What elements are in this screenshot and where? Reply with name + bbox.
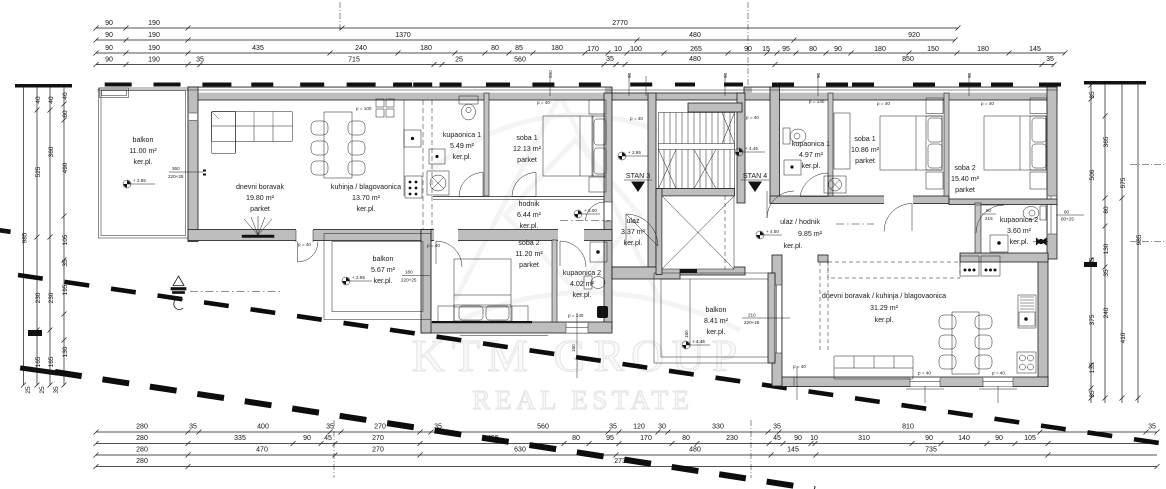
svg-text:375: 375 <box>1089 314 1096 325</box>
svg-text:9.85 m²: 9.85 m² <box>798 230 823 238</box>
svg-text:31.29 m²: 31.29 m² <box>870 304 899 312</box>
svg-text:ker.pl.: ker.pl. <box>624 239 643 247</box>
svg-text:35: 35 <box>62 259 69 267</box>
svg-text:190: 190 <box>148 57 160 64</box>
svg-text:575: 575 <box>1120 177 1127 188</box>
svg-text:525: 525 <box>35 166 42 177</box>
svg-text:p = 40: p = 40 <box>793 364 806 369</box>
svg-text:+ 2.95: + 2.95 <box>352 275 365 280</box>
svg-text:35: 35 <box>53 386 60 394</box>
svg-text:25: 25 <box>25 386 32 394</box>
svg-text:10: 10 <box>614 46 622 53</box>
svg-text:kupaonica 2: kupaonica 2 <box>1000 216 1038 224</box>
svg-text:dnevni boravak: dnevni boravak <box>236 183 285 191</box>
svg-text:100: 100 <box>630 46 642 53</box>
svg-text:ulaz: ulaz <box>626 217 639 225</box>
svg-text:180: 180 <box>977 46 989 53</box>
svg-text:35: 35 <box>609 424 617 431</box>
svg-text:parket: parket <box>519 261 539 269</box>
svg-text:12.13 m²: 12.13 m² <box>513 145 542 153</box>
svg-text:630: 630 <box>514 447 526 454</box>
svg-text:850: 850 <box>902 56 914 63</box>
svg-text:1370: 1370 <box>395 32 411 39</box>
svg-text:80: 80 <box>682 435 690 442</box>
svg-text:240: 240 <box>1103 307 1110 318</box>
svg-text:REAL ESTATE: REAL ESTATE <box>472 385 693 415</box>
svg-text:310: 310 <box>858 435 870 442</box>
svg-text:p = 40: p = 40 <box>992 371 1005 376</box>
svg-text:dnevni boravak / kuhinja / bla: dnevni boravak / kuhinja / blagovaonica <box>822 292 946 300</box>
svg-text:3.37 m²: 3.37 m² <box>621 228 646 236</box>
svg-text:90: 90 <box>967 72 972 78</box>
svg-text:165: 165 <box>48 356 55 367</box>
svg-text:90: 90 <box>303 435 311 442</box>
svg-text:145: 145 <box>1029 46 1041 53</box>
svg-text:p = 140: p = 140 <box>568 313 584 318</box>
svg-text:p = 40: p = 40 <box>877 101 890 106</box>
svg-text:p = 40: p = 40 <box>630 116 643 121</box>
svg-text:270: 270 <box>372 447 384 454</box>
svg-text:35: 35 <box>1089 390 1096 398</box>
svg-text:35: 35 <box>1089 91 1096 99</box>
svg-text:45: 45 <box>324 435 332 442</box>
svg-text:240: 240 <box>355 45 367 52</box>
svg-text:90: 90 <box>925 435 933 442</box>
svg-text:+ 2.95: + 2.95 <box>133 178 146 183</box>
svg-text:330: 330 <box>712 424 724 431</box>
svg-text:265: 265 <box>690 46 702 53</box>
svg-text:190: 190 <box>148 45 160 52</box>
svg-text:40: 40 <box>48 96 55 104</box>
svg-text:ker.pl.: ker.pl. <box>707 328 726 336</box>
svg-text:p = 40: p = 40 <box>746 115 759 120</box>
svg-text:25: 25 <box>455 57 463 64</box>
svg-text:ker.pl.: ker.pl. <box>520 222 539 230</box>
svg-text:490: 490 <box>62 162 69 173</box>
svg-text:p = 40: p = 40 <box>298 242 311 247</box>
svg-text:kupaonica 2: kupaonica 2 <box>563 269 601 277</box>
svg-text:balkon: balkon <box>133 136 154 144</box>
svg-text:90: 90 <box>105 45 113 52</box>
svg-text:95: 95 <box>782 46 790 53</box>
svg-text:170: 170 <box>640 435 652 442</box>
svg-text:130: 130 <box>1103 243 1110 254</box>
svg-text:220+25: 220+25 <box>168 174 184 179</box>
svg-text:90: 90 <box>105 20 113 27</box>
svg-text:2770: 2770 <box>612 20 628 27</box>
svg-text:985: 985 <box>1136 234 1143 245</box>
svg-text:35: 35 <box>1046 56 1054 63</box>
svg-text:90: 90 <box>105 32 113 39</box>
svg-text:410: 410 <box>1120 332 1127 343</box>
svg-text:35: 35 <box>196 57 204 64</box>
svg-text:ker.pl.: ker.pl. <box>1010 238 1029 246</box>
svg-text:230: 230 <box>48 292 55 303</box>
svg-text:920: 920 <box>908 32 920 39</box>
svg-text:balkon: balkon <box>373 255 394 263</box>
svg-text:280: 280 <box>136 424 148 431</box>
svg-text:180: 180 <box>420 45 432 52</box>
svg-text:165: 165 <box>35 356 42 367</box>
svg-text:80: 80 <box>1103 206 1110 214</box>
svg-text:25: 25 <box>39 386 46 394</box>
svg-text:80: 80 <box>809 46 817 53</box>
svg-text:280: 280 <box>136 435 148 442</box>
svg-text:215: 215 <box>985 216 993 221</box>
svg-text:balkon: balkon <box>706 306 727 314</box>
svg-text:80: 80 <box>491 45 499 52</box>
svg-text:+ 4.45: + 4.45 <box>745 146 758 151</box>
svg-text:90: 90 <box>105 57 113 64</box>
svg-text:45: 45 <box>773 435 781 442</box>
svg-text:4.97 m²: 4.97 m² <box>799 151 824 159</box>
svg-text:+ 3.00: + 3.00 <box>584 208 597 213</box>
svg-text:kupaonica 1: kupaonica 1 <box>443 131 481 139</box>
svg-text:150: 150 <box>927 46 939 53</box>
svg-text:985: 985 <box>22 232 29 243</box>
svg-text:hodnik: hodnik <box>519 200 540 208</box>
svg-text:p = 140: p = 140 <box>809 99 825 104</box>
svg-text:STAN 3: STAN 3 <box>626 172 650 180</box>
svg-text:11.00 m²: 11.00 m² <box>129 147 157 155</box>
svg-text:5.67 m²: 5.67 m² <box>371 266 396 274</box>
svg-text:35: 35 <box>326 424 334 431</box>
svg-text:135: 135 <box>1089 362 1096 373</box>
svg-text:810: 810 <box>902 424 914 431</box>
svg-text:90: 90 <box>627 72 632 78</box>
svg-text:360: 360 <box>172 166 180 171</box>
svg-text:p = 40: p = 40 <box>918 371 931 376</box>
svg-text:220+25: 220+25 <box>401 278 417 283</box>
svg-text:ker.pl.: ker.pl. <box>802 162 821 170</box>
svg-text:80: 80 <box>572 435 580 442</box>
svg-text:95: 95 <box>606 435 614 442</box>
svg-text:230: 230 <box>35 292 42 303</box>
svg-text:90: 90 <box>794 435 802 442</box>
svg-text:560: 560 <box>514 57 526 64</box>
svg-text:190: 190 <box>148 32 160 39</box>
svg-text:15: 15 <box>762 46 770 53</box>
svg-text:715: 715 <box>348 57 360 64</box>
svg-text:p = 40: p = 40 <box>537 100 550 105</box>
svg-text:85: 85 <box>515 45 523 52</box>
svg-text:506: 506 <box>1089 169 1096 180</box>
svg-text:180: 180 <box>874 46 886 53</box>
svg-text:80: 80 <box>1064 210 1070 215</box>
svg-text:365: 365 <box>1103 136 1110 147</box>
svg-text:kuhinja / blagovaonica: kuhinja / blagovaonica <box>331 183 401 191</box>
svg-text:180: 180 <box>551 45 563 52</box>
svg-text:280: 280 <box>136 458 148 465</box>
svg-text:360: 360 <box>48 146 55 157</box>
svg-text:3.60 m²: 3.60 m² <box>1007 227 1032 235</box>
svg-text:ker.pl.: ker.pl. <box>134 158 153 166</box>
svg-text:270: 270 <box>374 424 386 431</box>
svg-text:80+25: 80+25 <box>1061 217 1074 222</box>
svg-text:35: 35 <box>189 424 197 431</box>
svg-text:90: 90 <box>723 72 728 78</box>
svg-text:13.70 m²: 13.70 m² <box>352 194 381 202</box>
svg-text:105: 105 <box>1024 435 1036 442</box>
svg-text:STAN 4: STAN 4 <box>743 172 767 180</box>
svg-text:220+25: 220+25 <box>744 320 760 325</box>
svg-text:470: 470 <box>256 447 268 454</box>
svg-text:435: 435 <box>252 45 264 52</box>
svg-text:560: 560 <box>537 424 549 431</box>
svg-text:ker.pl.: ker.pl. <box>453 153 472 161</box>
svg-text:190: 190 <box>148 20 160 27</box>
svg-text:kupaonica 1: kupaonica 1 <box>792 140 830 148</box>
svg-text:60: 60 <box>62 110 69 118</box>
svg-text:5.49 m²: 5.49 m² <box>450 142 475 150</box>
svg-text:400: 400 <box>257 424 269 431</box>
svg-text:35: 35 <box>1148 424 1156 431</box>
svg-text:15.40 m²: 15.40 m² <box>951 175 980 183</box>
svg-text:480: 480 <box>689 32 701 39</box>
svg-text:+ 2.95: + 2.95 <box>628 150 641 155</box>
svg-text:335: 335 <box>234 435 246 442</box>
svg-text:120: 120 <box>633 424 645 431</box>
svg-text:90: 90 <box>816 72 821 78</box>
svg-text:105: 105 <box>62 234 69 245</box>
svg-text:240: 240 <box>548 70 553 78</box>
svg-text:180: 180 <box>405 270 413 275</box>
svg-text:40: 40 <box>62 92 69 100</box>
svg-text:145: 145 <box>787 447 799 454</box>
svg-text:8.41 m²: 8.41 m² <box>704 317 729 325</box>
svg-text:210: 210 <box>748 313 756 318</box>
svg-text:ker.pl.: ker.pl. <box>573 291 592 299</box>
svg-text:140: 140 <box>958 435 970 442</box>
svg-text:soba 2: soba 2 <box>954 164 975 172</box>
svg-text:130: 130 <box>62 346 69 357</box>
svg-text:480: 480 <box>689 447 701 454</box>
svg-text:soba 1: soba 1 <box>516 134 537 142</box>
svg-text:480: 480 <box>689 56 701 63</box>
svg-text:35: 35 <box>1103 269 1110 277</box>
svg-text:ker.pl.: ker.pl. <box>784 242 803 250</box>
svg-text:90: 90 <box>834 46 842 53</box>
svg-text:735: 735 <box>925 447 937 454</box>
svg-text:11.20 m²: 11.20 m² <box>515 250 543 258</box>
svg-text:p = 40: p = 40 <box>981 101 994 106</box>
svg-text:p = 40: p = 40 <box>427 243 440 248</box>
svg-text:4.02 m²: 4.02 m² <box>570 280 595 288</box>
svg-text:35: 35 <box>606 56 614 63</box>
svg-text:35: 35 <box>773 424 781 431</box>
svg-text:parket: parket <box>955 186 975 194</box>
svg-text:180: 180 <box>571 344 576 352</box>
svg-text:p = 100: p = 100 <box>356 106 372 111</box>
svg-text:180: 180 <box>684 330 689 338</box>
svg-text:parket: parket <box>517 156 537 164</box>
svg-text:+ 4.50: + 4.50 <box>766 229 779 234</box>
svg-text:170: 170 <box>587 46 599 53</box>
svg-text:195: 195 <box>62 284 69 295</box>
svg-text:280: 280 <box>136 447 148 454</box>
svg-text:ker.pl.: ker.pl. <box>374 277 393 285</box>
svg-text:30: 30 <box>658 424 666 431</box>
svg-text:ulaz / hodnik: ulaz / hodnik <box>780 218 820 226</box>
svg-text:10: 10 <box>810 435 818 442</box>
svg-text:soba 2: soba 2 <box>518 239 539 247</box>
svg-text:parket: parket <box>855 157 875 165</box>
svg-text:soba 1: soba 1 <box>854 135 875 143</box>
svg-text:+ 4.45: + 4.45 <box>692 339 705 344</box>
svg-text:parket: parket <box>250 205 270 213</box>
svg-text:6.44 m²: 6.44 m² <box>517 211 542 219</box>
svg-text:270: 270 <box>372 435 384 442</box>
svg-text:10.86 m²: 10.86 m² <box>851 146 880 154</box>
svg-text:ker.pl.: ker.pl. <box>875 316 894 324</box>
svg-text:19.80 m²: 19.80 m² <box>246 194 275 202</box>
svg-text:ker.pl.: ker.pl. <box>357 205 376 213</box>
svg-text:80: 80 <box>986 208 992 213</box>
svg-text:40: 40 <box>35 96 42 104</box>
svg-text:230: 230 <box>726 435 738 442</box>
svg-text:90: 90 <box>995 435 1003 442</box>
